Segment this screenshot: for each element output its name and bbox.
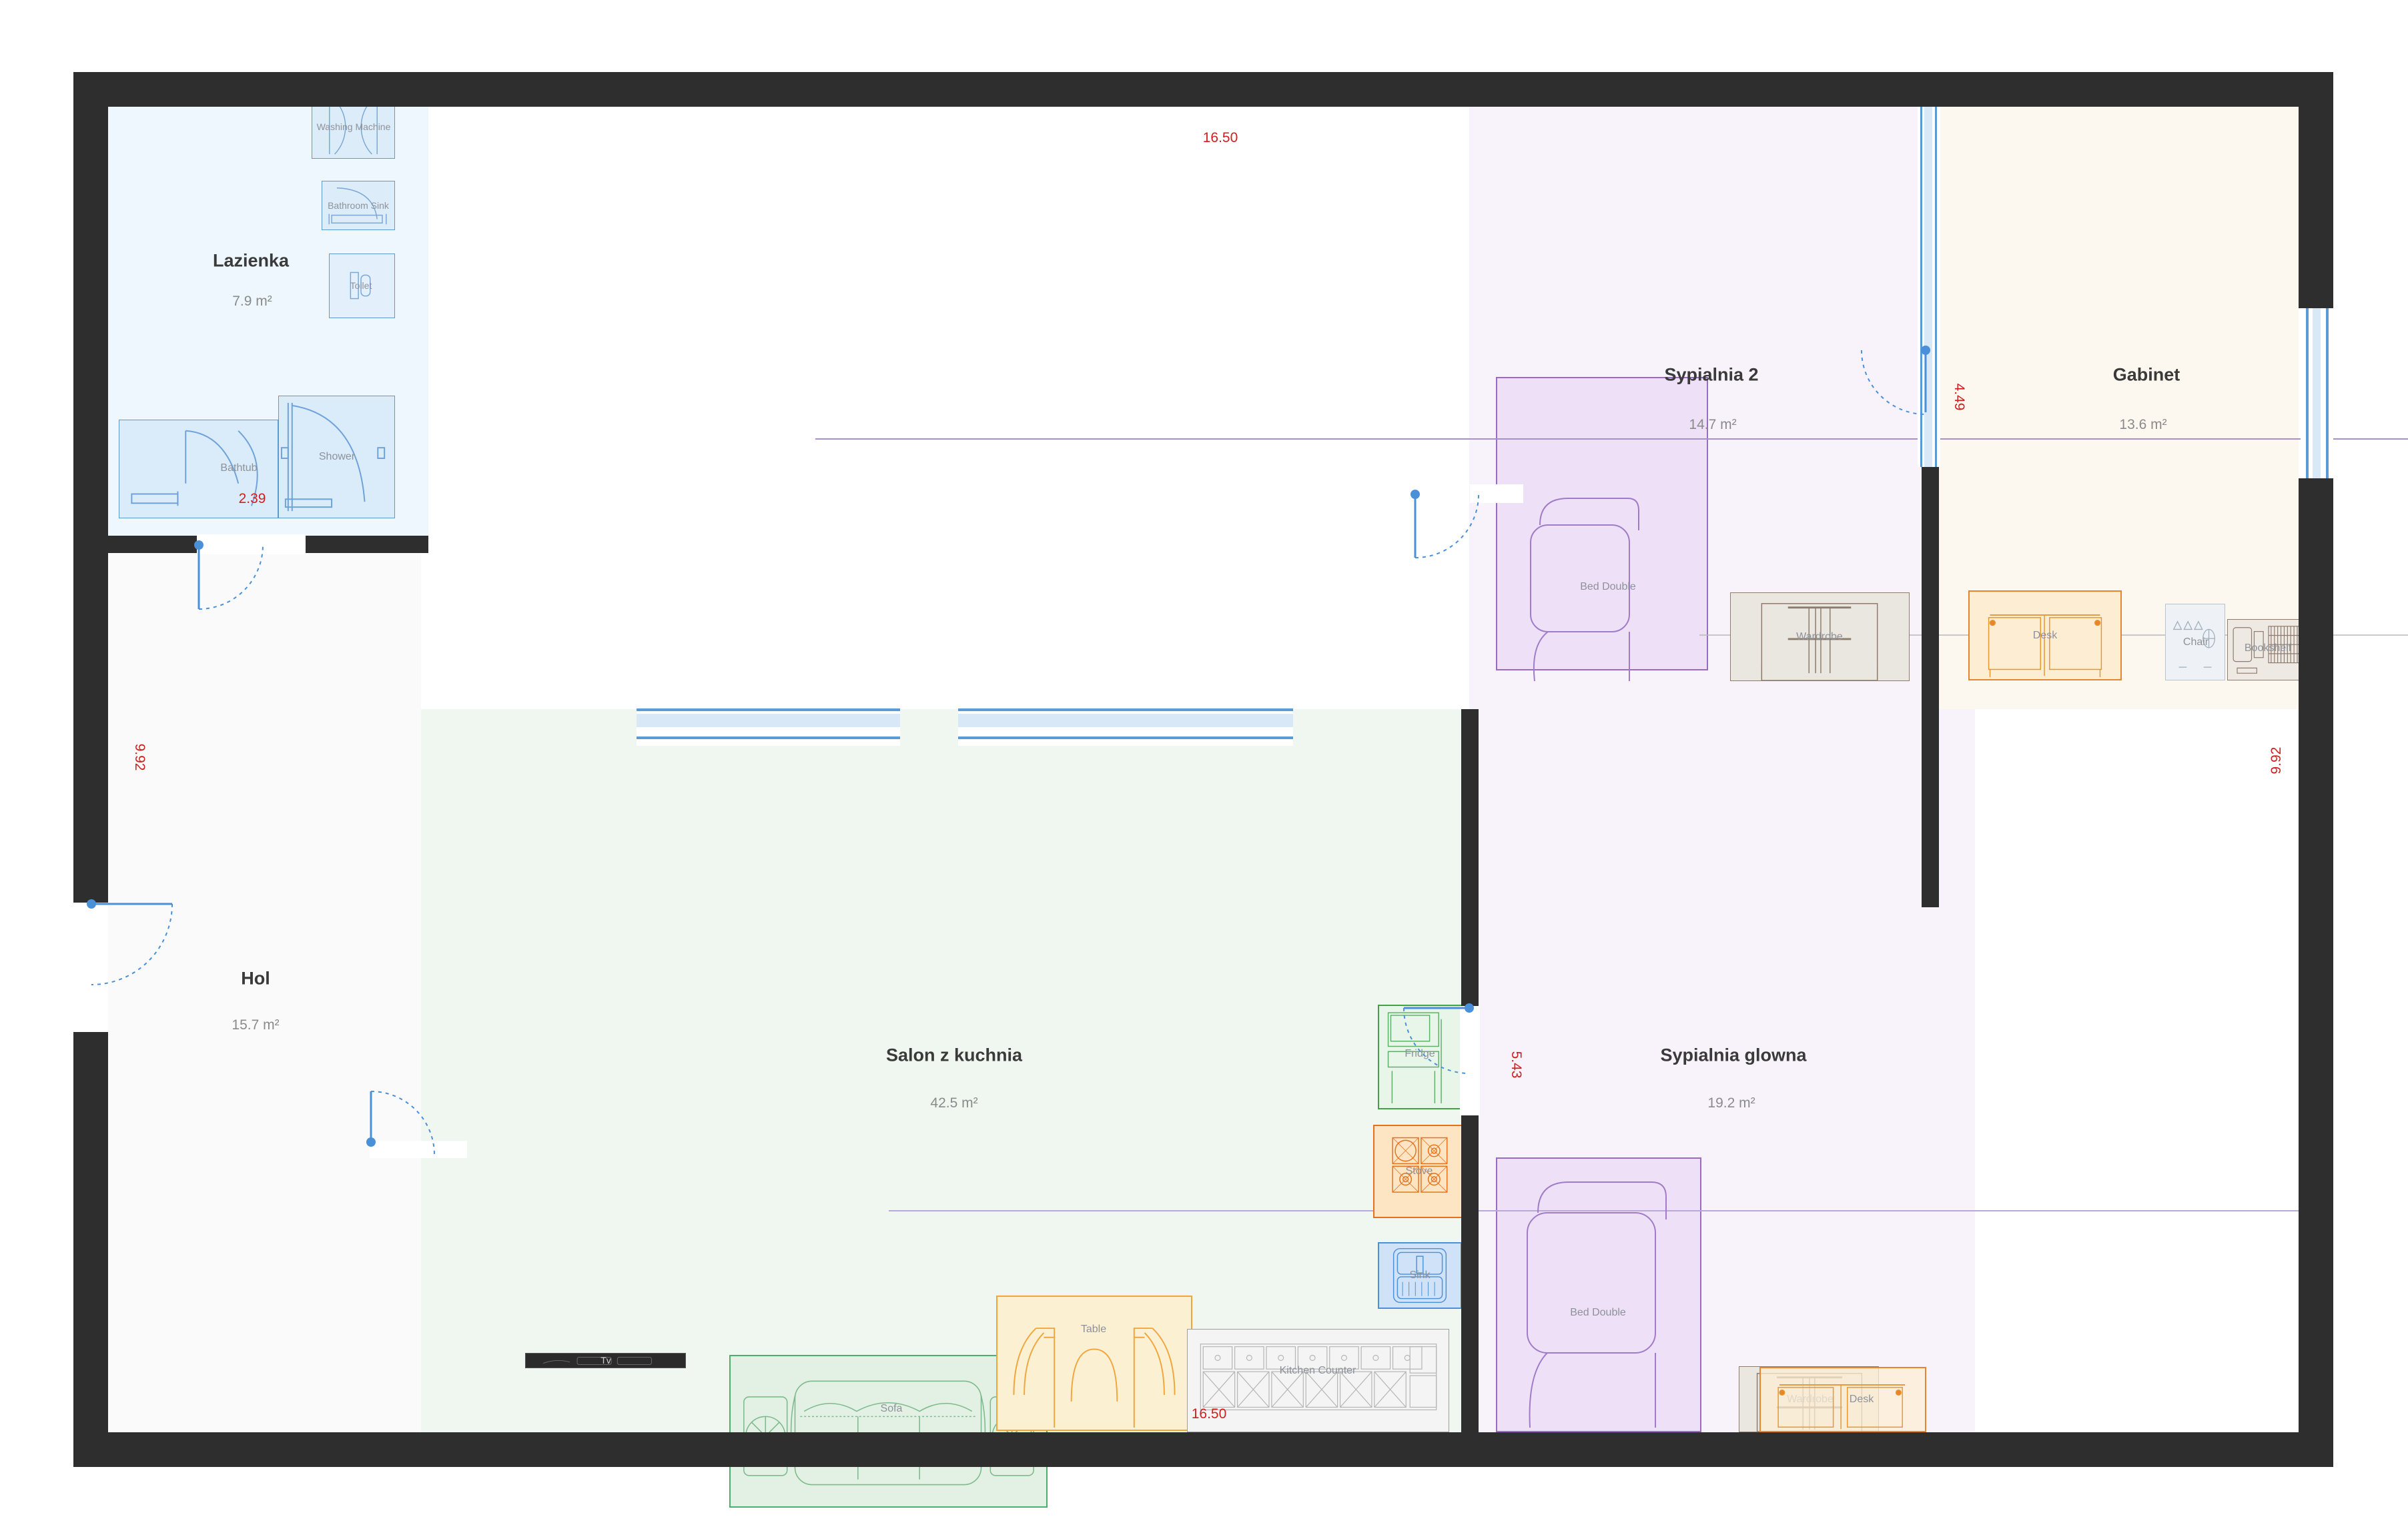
room-title-lazienka: Lazienka: [213, 251, 289, 272]
room-title-gabinet: Gabinet: [2113, 365, 2180, 386]
room-title-hol: Hol: [241, 969, 270, 989]
room-area-sypialnia-glowna: 19.2 m²: [1707, 1095, 1755, 1111]
dimension-left: 9.92: [131, 744, 147, 771]
room-title-sypialnia-glowna: Sypialnia glowna: [1660, 1045, 1806, 1066]
dimension-gabinet: 4.49: [1951, 384, 1967, 411]
dimension-right: 9.92: [2269, 747, 2285, 775]
floor-plan-canvas: Washing Machine Bathroom Sink Toilet Bat…: [0, 0, 2408, 1519]
room-area-gabinet: 13.6 m²: [2119, 417, 2166, 433]
room-title-salon: Salon z kuchnia: [886, 1045, 1022, 1066]
room-area-sypialnia-2: 14.7 m²: [1689, 417, 1736, 433]
dimension-bottom: 16.50: [1192, 1406, 1227, 1422]
room-title-sypialnia-2: Sypialnia 2: [1664, 365, 1758, 386]
doors-layer[interactable]: [0, 0, 2408, 1519]
dimension-top: 16.50: [1203, 130, 1238, 146]
room-area-hol: 15.7 m²: [232, 1017, 279, 1033]
room-area-lazienka: 7.9 m²: [232, 294, 272, 310]
room-area-salon: 42.5 m²: [930, 1095, 977, 1111]
dimension-salon: 5.43: [1508, 1051, 1524, 1079]
dimension-bathtub: 2.39: [239, 491, 266, 507]
